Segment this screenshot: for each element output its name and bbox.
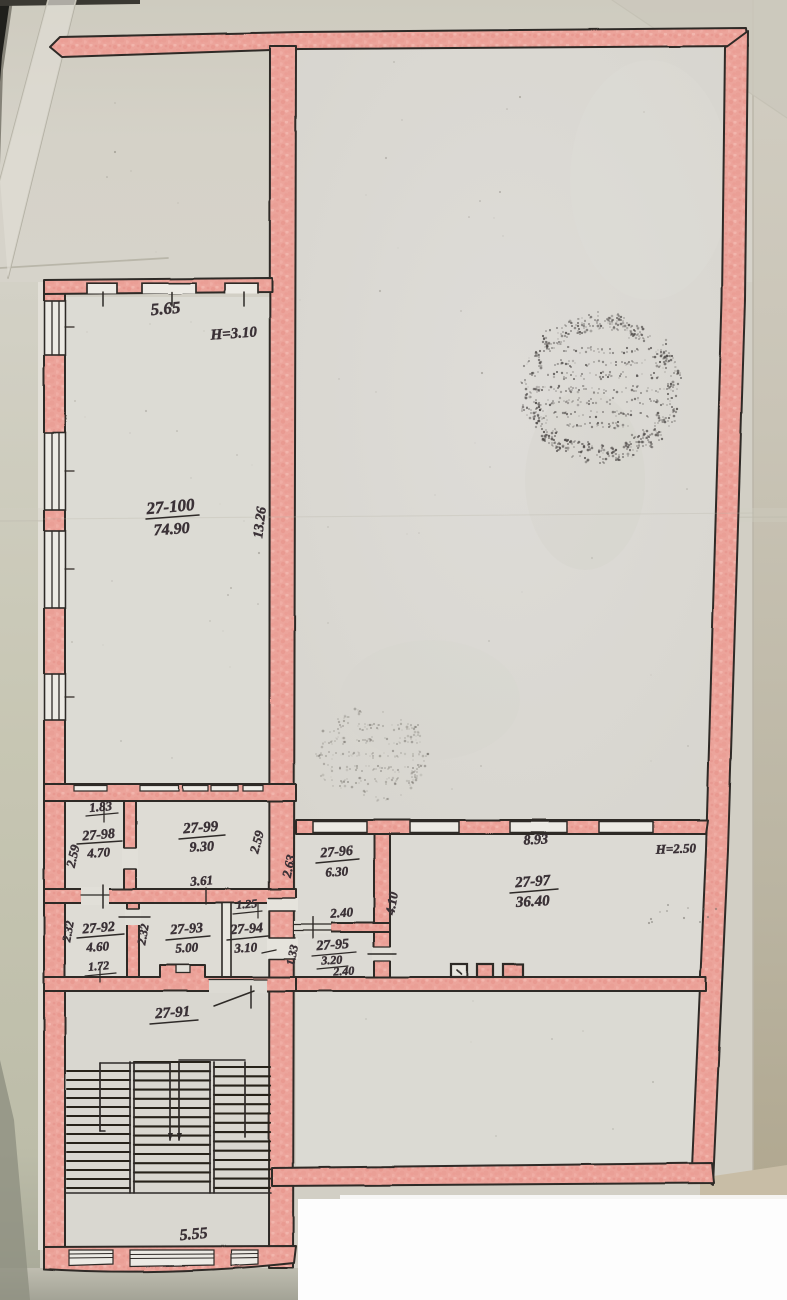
svg-text:5.00: 5.00 bbox=[175, 939, 199, 955]
svg-text:2.40: 2.40 bbox=[329, 904, 354, 921]
svg-text:8.93: 8.93 bbox=[523, 832, 548, 848]
svg-text:5.55: 5.55 bbox=[179, 1225, 208, 1244]
svg-text:3.10: 3.10 bbox=[233, 939, 258, 955]
svg-text:2.40: 2.40 bbox=[332, 963, 355, 978]
svg-text:4.60: 4.60 bbox=[85, 938, 110, 955]
svg-text:1.25: 1.25 bbox=[236, 896, 258, 911]
svg-text:74.90: 74.90 bbox=[153, 520, 190, 539]
svg-text:36.40: 36.40 bbox=[515, 893, 551, 911]
svg-text:27-94: 27-94 bbox=[229, 921, 264, 938]
svg-text:4.70: 4.70 bbox=[86, 844, 111, 861]
svg-text:3.61: 3.61 bbox=[189, 872, 214, 889]
svg-text:27-93: 27-93 bbox=[169, 921, 204, 938]
svg-text:5.65: 5.65 bbox=[150, 298, 182, 320]
svg-text:9.30: 9.30 bbox=[189, 839, 214, 855]
svg-text:6.30: 6.30 bbox=[325, 863, 349, 879]
svg-text:H=3.10: H=3.10 bbox=[209, 324, 258, 343]
svg-text:27-91: 27-91 bbox=[154, 1004, 191, 1022]
svg-text:H=2.50: H=2.50 bbox=[654, 840, 696, 856]
svg-text:1.72: 1.72 bbox=[88, 958, 110, 974]
svg-text:27-99: 27-99 bbox=[182, 819, 220, 838]
svg-text:27-95: 27-95 bbox=[315, 937, 350, 954]
svg-text:27-97: 27-97 bbox=[514, 873, 552, 892]
svg-text:27-96: 27-96 bbox=[319, 844, 354, 862]
svg-text:1.83: 1.83 bbox=[89, 798, 113, 815]
